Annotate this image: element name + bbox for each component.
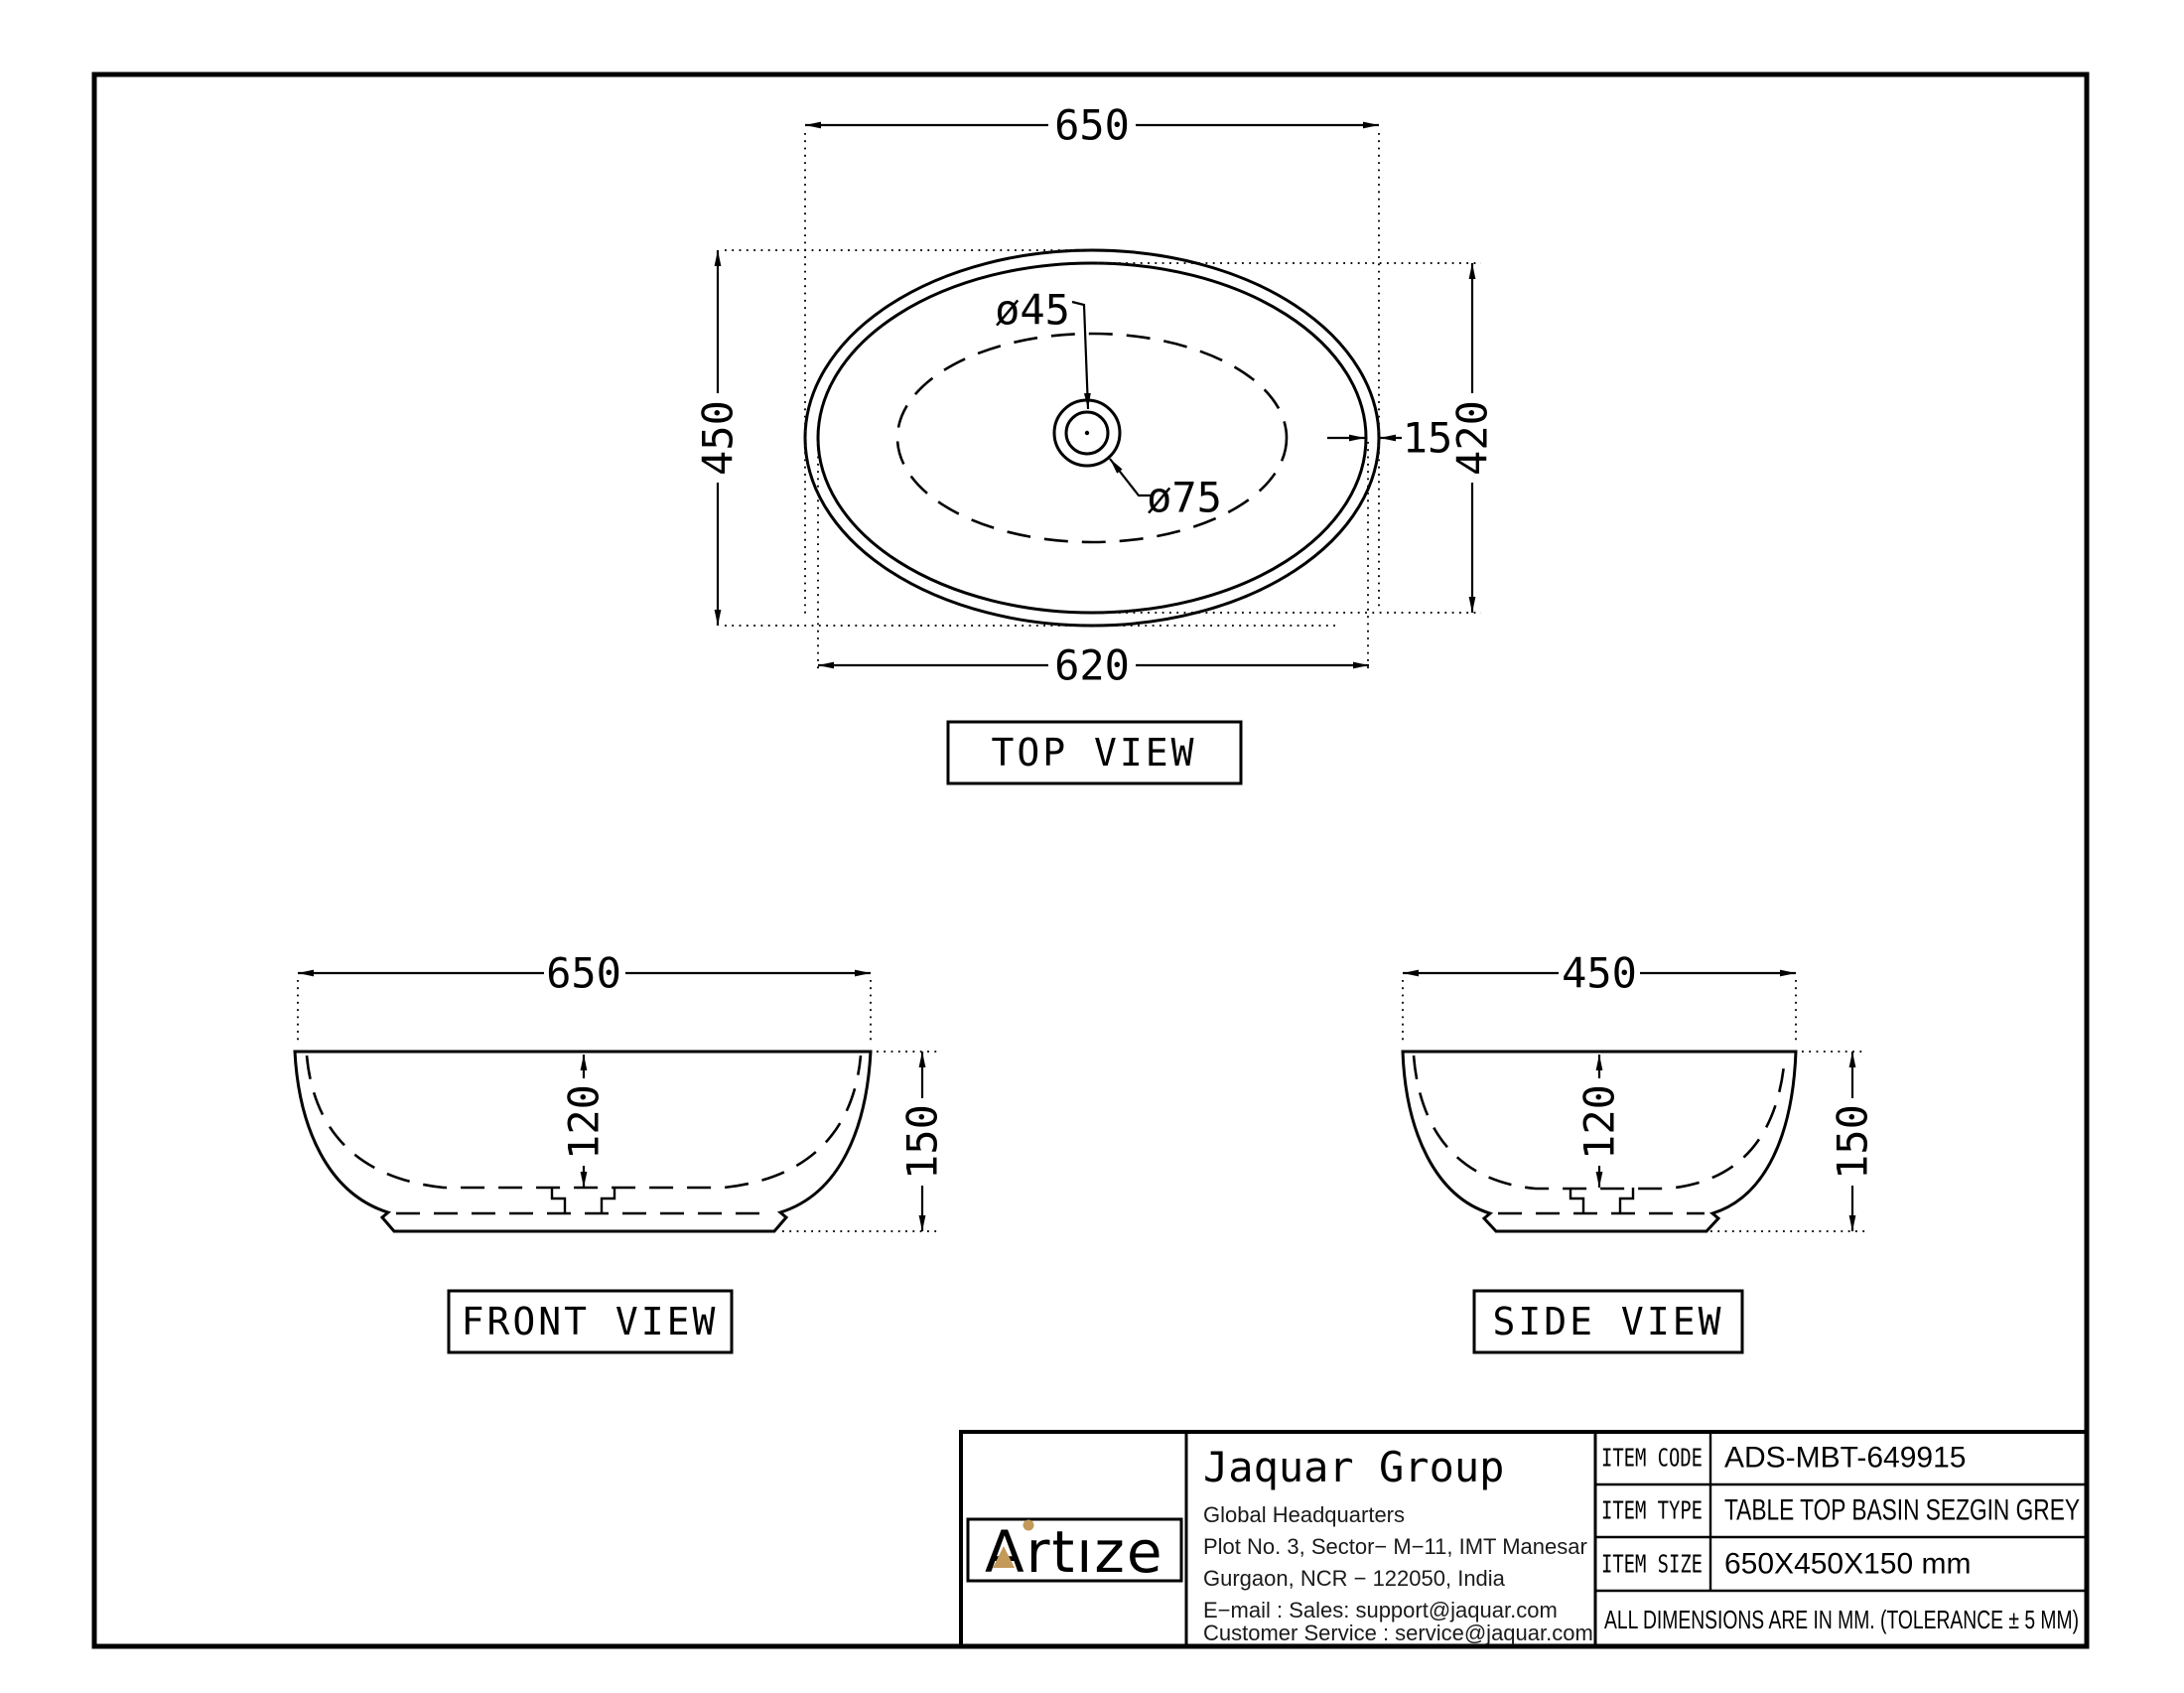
drawing-sheet: 650 450 420 620 [0, 0, 2184, 1688]
technical-drawing-canvas: 650 450 420 620 [0, 0, 2184, 1688]
item-size-label: ITEM SIZE [1601, 1550, 1703, 1579]
tolerance-note: ALL DIMENSIONS ARE IN MM. (TOLERANCE ± 5… [1604, 1605, 2079, 1634]
dim-front-150: 150 [782, 1052, 947, 1231]
item-type-label: ITEM TYPE [1601, 1496, 1703, 1525]
dim-text-front-150: 150 [898, 1104, 947, 1180]
leader-drain-45: ø45 [995, 286, 1088, 410]
basin-outer-rim [805, 250, 1379, 626]
top-view-label-text: TOP VIEW [991, 731, 1196, 775]
dim-front-650: 650 [298, 949, 871, 1046]
dim-text-620: 620 [1054, 641, 1130, 690]
side-view: 450 120 150 SIDE VIEW [1403, 949, 1877, 1353]
side-view-label-text: SIDE VIEW [1493, 1300, 1724, 1343]
side-view-label: SIDE VIEW [1474, 1291, 1742, 1352]
address-line: Gurgaon, NCR − 122050, India [1203, 1566, 1506, 1591]
dim-text-front-650: 650 [546, 949, 621, 998]
page-border [94, 74, 2087, 1646]
dim-top-620: 620 [818, 442, 1369, 690]
address-line: Plot No. 3, Sector− M−11, IMT Manesar [1203, 1534, 1587, 1559]
basin-inner-rim [818, 263, 1366, 613]
front-view-label: FRONT VIEW [449, 1291, 732, 1352]
dim-text-side-450: 450 [1562, 949, 1637, 998]
dim-front-120: 120 [560, 1055, 609, 1188]
address-line: Global Headquarters [1203, 1502, 1405, 1527]
leader-drain-75: ø75 [1110, 459, 1222, 522]
dim-text-650: 650 [1054, 101, 1130, 150]
address-line: Customer Service : service@jaquar.com [1203, 1621, 1593, 1645]
address-line: E−mail : Sales: support@jaquar.com [1203, 1598, 1558, 1622]
dim-text-drain-75: ø75 [1147, 474, 1222, 522]
item-type-value: TABLE TOP BASIN SEZGIN GREY [1724, 1494, 2080, 1527]
front-view-label-text: FRONT VIEW [462, 1300, 719, 1343]
top-view-label: TOP VIEW [948, 722, 1241, 783]
drain-center-dot [1085, 431, 1089, 435]
item-code-value: ADS-MBT-649915 [1724, 1442, 1966, 1475]
dim-text-450: 450 [694, 400, 743, 476]
dim-text-side-120: 120 [1575, 1084, 1624, 1160]
brand-logo: Artıze [968, 1518, 1181, 1586]
dim-side-450: 450 [1403, 949, 1796, 1046]
title-block: Artıze Jaquar Group Global Headquarters … [961, 1432, 2087, 1646]
front-drain-fitting [552, 1188, 614, 1213]
dim-text-front-120: 120 [560, 1084, 609, 1160]
basin-bottom-dashed [897, 334, 1287, 542]
dim-side-120: 120 [1575, 1055, 1624, 1188]
dim-text-side-150: 150 [1829, 1104, 1877, 1180]
side-drain-fitting [1570, 1188, 1633, 1213]
dim-top-15: 15 [1327, 414, 1452, 463]
logo-text: Artıze [985, 1518, 1164, 1586]
top-view: 650 450 420 620 [694, 101, 1497, 784]
item-size-value: 650X450X150 mm [1724, 1548, 1972, 1581]
front-view: 650 120 150 FRONT VIEW [295, 949, 947, 1353]
dim-top-650: 650 [805, 101, 1379, 619]
item-code-label: ITEM CODE [1601, 1444, 1703, 1473]
dim-text-15: 15 [1403, 414, 1453, 463]
dim-text-drain-45: ø45 [995, 286, 1070, 335]
logo-dot-icon [1024, 1520, 1034, 1531]
company-name: Jaquar Group [1203, 1443, 1504, 1491]
dim-text-420: 420 [1448, 400, 1497, 476]
company-info: Jaquar Group Global Headquarters Plot No… [1203, 1443, 1593, 1645]
